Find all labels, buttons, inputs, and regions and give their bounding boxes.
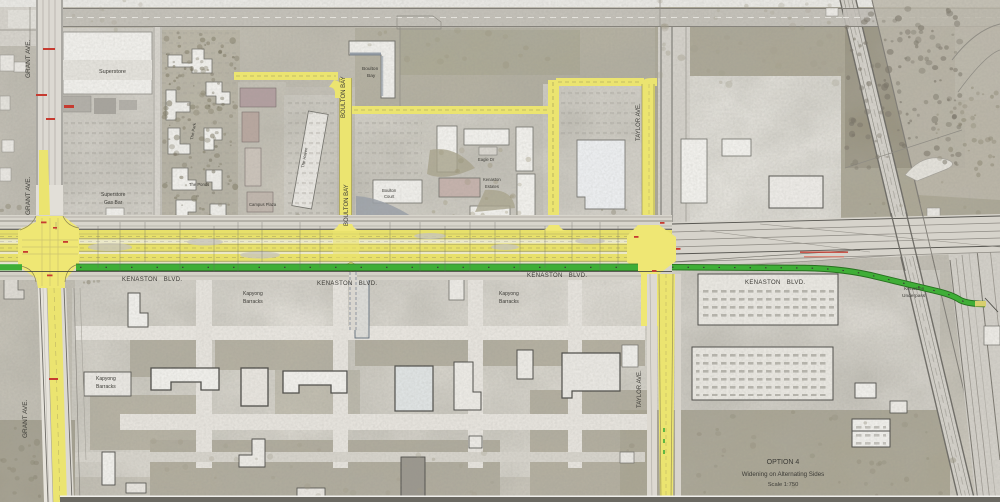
svg-text:TAYLOR AVE.: TAYLOR AVE.: [637, 370, 643, 408]
svg-text:Court: Court: [384, 194, 395, 199]
svg-text:Widening on Alternating Sides: Widening on Alternating Sides: [742, 471, 825, 478]
svg-text:GRANT AVE.: GRANT AVE.: [25, 39, 32, 78]
svg-text:KENASTON BLVD.: KENASTON BLVD.: [317, 281, 377, 287]
svg-text:Gas Bar: Gas Bar: [104, 200, 123, 206]
svg-text:Kenaston: Kenaston: [483, 177, 501, 182]
svg-text:Kapyong: Kapyong: [243, 291, 263, 297]
svg-text:Estates: Estates: [485, 184, 499, 189]
svg-text:BOULTON BAY: BOULTON BAY: [341, 76, 347, 118]
svg-text:GRANT AVE.: GRANT AVE.: [22, 399, 29, 438]
svg-text:Boulton: Boulton: [382, 188, 397, 193]
svg-text:Scale 1:750: Scale 1:750: [768, 482, 799, 488]
svg-text:Kapyong: Kapyong: [96, 376, 116, 382]
svg-text:Campus Plaza: Campus Plaza: [249, 202, 277, 207]
svg-text:Boulton: Boulton: [362, 66, 379, 72]
svg-text:Bay: Bay: [367, 73, 376, 79]
svg-text:Barracks: Barracks: [499, 299, 519, 305]
svg-text:Eagle Dr: Eagle Dr: [478, 157, 495, 162]
svg-text:KENASTON BLVD.: KENASTON BLVD.: [122, 277, 182, 283]
svg-text:KENASTON BLVD.: KENASTON BLVD.: [527, 273, 587, 279]
svg-text:Underpass: Underpass: [902, 293, 926, 299]
svg-text:Kapyong: Kapyong: [499, 291, 519, 297]
svg-text:GRANT AVE.: GRANT AVE.: [25, 176, 32, 215]
svg-text:Superstore: Superstore: [101, 192, 126, 198]
svg-text:TAYLOR AVE.: TAYLOR AVE.: [636, 103, 642, 141]
svg-text:Barracks: Barracks: [243, 299, 263, 305]
svg-text:OPTION 4: OPTION 4: [767, 459, 800, 466]
svg-text:KENASTON BLVD.: KENASTON BLVD.: [745, 280, 805, 286]
svg-text:Kenaston: Kenaston: [904, 286, 925, 292]
svg-text:Superstore: Superstore: [99, 69, 126, 75]
svg-text:The Ponds: The Ponds: [189, 182, 209, 187]
svg-text:Barracks: Barracks: [96, 384, 116, 390]
svg-text:BOULTON BAY: BOULTON BAY: [344, 184, 350, 226]
